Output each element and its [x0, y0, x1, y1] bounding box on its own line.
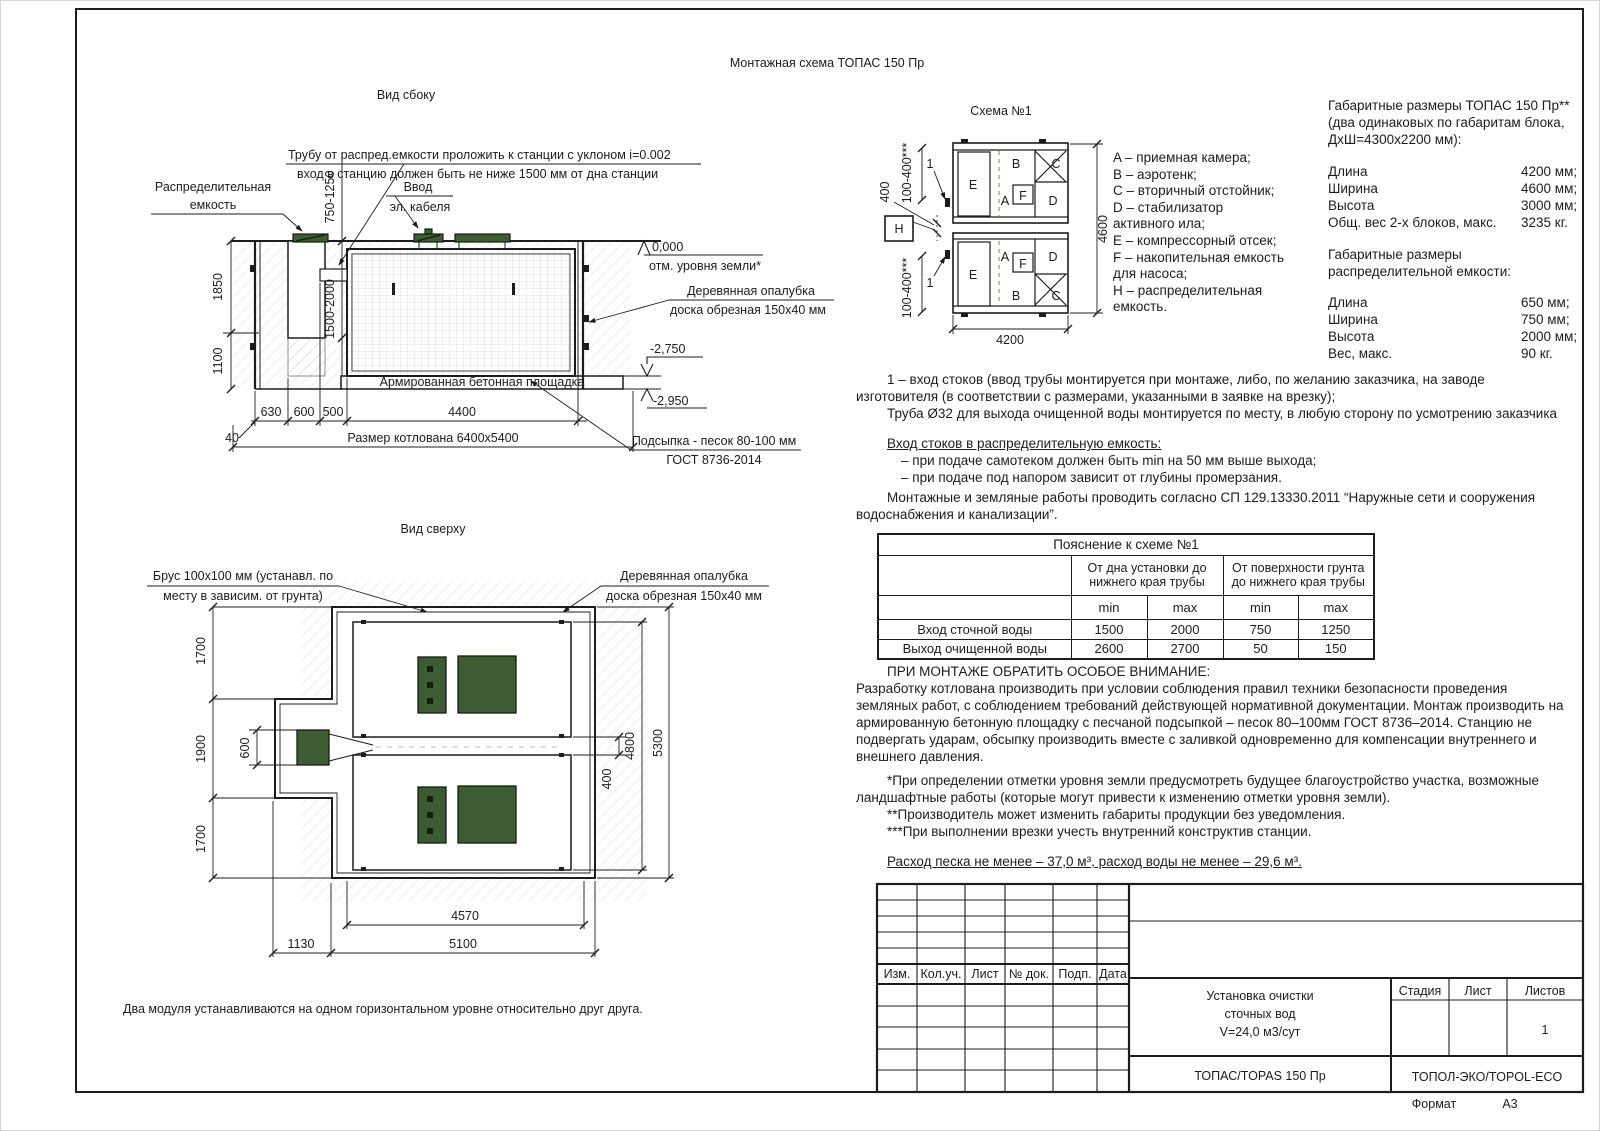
- ground-level-mark: 0,000 отм. уровня земли*: [638, 240, 763, 273]
- svg-text:5100: 5100: [449, 937, 477, 951]
- legend-line: H – распределительная: [1113, 283, 1284, 300]
- svg-text:D: D: [1048, 194, 1057, 208]
- col-kol: Кол.уч.: [921, 967, 962, 981]
- svg-text:1850: 1850: [211, 273, 225, 301]
- svg-text:1900: 1900: [194, 735, 208, 763]
- attention-line3: армированную бетонную площадку с песчано…: [856, 715, 1532, 731]
- outlet-note: Труба Ø32 для выхода очищенной воды монт…: [887, 406, 1557, 422]
- svg-text:Ввод: Ввод: [404, 180, 434, 194]
- svg-text:-2,750: -2,750: [650, 342, 685, 356]
- svg-text:доска обрезная 150х40 мм: доска обрезная 150х40 мм: [606, 589, 762, 603]
- svg-text:емкость: емкость: [190, 198, 237, 212]
- inlet-note-line1: 1 – вход стоков (ввод трубы монтируется …: [887, 372, 1485, 388]
- svg-text:100-400***: 100-400***: [900, 143, 914, 204]
- svg-text:отм. уровня земли*: отм. уровня земли*: [649, 259, 761, 273]
- svg-text:C: C: [1051, 289, 1060, 303]
- footnote-1-line2: ландшафтные работы (которые могут привес…: [856, 790, 1390, 806]
- product-name: ТОПАС/TOPAS 150 Пр: [1194, 1069, 1325, 1083]
- legend-line: E – компрессорный отсек;: [1113, 233, 1284, 250]
- svg-text:1500-2000: 1500-2000: [323, 279, 337, 339]
- station-body: [347, 242, 575, 376]
- svg-text:4570: 4570: [451, 909, 479, 923]
- col-podp: Подп.: [1058, 967, 1091, 981]
- compartment-legend: A – приемная камера; B – аэротенк; C – в…: [1113, 150, 1284, 316]
- table-row: Вход сточной воды 1500 2000 750 1250: [878, 619, 1374, 639]
- dist-inlet-bullet2: – при подаче под напором зависит от глуб…: [901, 470, 1282, 486]
- svg-text:F: F: [1019, 257, 1027, 271]
- attention-line1: Разработку котлована производить при усл…: [856, 681, 1507, 697]
- top-distribution-tank: [297, 730, 329, 765]
- dim-row: Длина4200 мм;: [1328, 164, 1578, 179]
- col-data: Дата: [1099, 967, 1127, 981]
- svg-text:E: E: [969, 268, 977, 282]
- attention-line4: подвергать ударам, обсыпку производить в…: [856, 732, 1537, 748]
- dist-inlet-bullet1: – при подаче самотеком должен быть min н…: [901, 453, 1316, 469]
- attention-title: ПРИ МОНТАЖЕ ОБРАТИТЬ ОСОБОЕ ВНИМАНИЕ:: [887, 664, 1210, 680]
- svg-text:B: B: [1012, 289, 1020, 303]
- sheets-value: 1: [1542, 1023, 1549, 1037]
- side-view-title: Вид сбоку: [377, 88, 436, 102]
- dim-row: Высота2000 мм;: [1328, 329, 1578, 344]
- stage-label: Стадия: [1399, 984, 1442, 998]
- col-doc: № док.: [1009, 967, 1049, 981]
- svg-text:630: 630: [261, 405, 282, 419]
- legend-line: для насоса;: [1113, 266, 1284, 283]
- level-2950-mark: -2,950: [641, 389, 707, 408]
- svg-text:D: D: [1048, 250, 1057, 264]
- svg-text:600: 600: [238, 738, 252, 759]
- footnote-1-line1: *При определении отметки уровня земли пр…: [887, 773, 1539, 789]
- legend-line: D – стабилизатор: [1113, 200, 1284, 217]
- top-view-note: Два модуля устанавливаются на одном гори…: [123, 1002, 643, 1016]
- schema-1: Схема №1 E B C A F D: [878, 104, 1110, 347]
- title-block: Изм. Кол.уч. Лист № док. Подп. Дата Уста…: [877, 884, 1583, 1111]
- module-2: [353, 753, 571, 871]
- svg-text:H: H: [894, 222, 903, 236]
- schema-title: Схема №1: [970, 104, 1032, 118]
- svg-text:Подсыпка - песок 80-100 мм: Подсыпка - песок 80-100 мм: [632, 434, 796, 448]
- svg-text:0,000: 0,000: [652, 240, 683, 254]
- dim-row: Длина650 мм;: [1328, 295, 1578, 310]
- doc-title-2: сточных вод: [1224, 1007, 1296, 1021]
- table-group2-header: От поверхности грунта до нижнего края тр…: [1223, 555, 1374, 595]
- schema-block-bottom: E A F D B C: [945, 233, 1068, 317]
- svg-text:4600: 4600: [1096, 215, 1110, 243]
- schema-block-top: E B C A F D: [945, 139, 1068, 223]
- svg-text:Деревянная опалубка: Деревянная опалубка: [687, 284, 815, 298]
- company-name: ТОПОЛ-ЭКО/TOPOL-ECO: [1412, 1070, 1563, 1084]
- svg-text:1700: 1700: [194, 637, 208, 665]
- footnote-3: ***При выполнении врезки учесть внутренн…: [887, 824, 1311, 840]
- svg-text:A: A: [1001, 194, 1010, 208]
- svg-text:1130: 1130: [288, 937, 315, 951]
- explanation-table: Пояснение к схеме №1 От дна установки до…: [877, 533, 1375, 660]
- distribution-tank-label: Распределительная емкость: [151, 180, 302, 231]
- consumption-note: Расход песка не менее – 37,0 м³, расход …: [887, 854, 1302, 870]
- legend-line: емкость.: [1113, 299, 1284, 316]
- svg-text:C: C: [1051, 157, 1060, 171]
- svg-text:месту в зависим. от грунта): месту в зависим. от грунта): [163, 589, 323, 603]
- svg-text:400: 400: [600, 769, 614, 790]
- max-header-2: max: [1298, 595, 1374, 619]
- attention-line5: внешнего давления.: [856, 749, 984, 765]
- side-view: Вид сбоку Армированная бетонная площадка: [151, 88, 834, 467]
- dim-row: Высота3000 мм;: [1328, 198, 1578, 213]
- max-header-1: max: [1147, 595, 1223, 619]
- legend-line: C – вторичный отстойник;: [1113, 183, 1284, 200]
- svg-text:A: A: [1001, 250, 1010, 264]
- svg-text:4800: 4800: [623, 732, 637, 760]
- cable-entry-label: Ввод эл. кабеля: [386, 180, 453, 228]
- legend-line: B – аэротенк;: [1113, 167, 1284, 184]
- footnote-2: **Производитель может изменить габариты …: [887, 807, 1345, 823]
- dim-row: Общ. вес 2-х блоков, макс.3235 кг.: [1328, 215, 1578, 230]
- svg-text:Размер котлована 6400х5400: Размер котлована 6400х5400: [347, 431, 518, 445]
- legend-line: A – приемная камера;: [1113, 150, 1284, 167]
- svg-text:B: B: [1012, 157, 1020, 171]
- page-title: Монтажная схема ТОПАС 150 Пр: [730, 56, 924, 70]
- svg-text:5300: 5300: [651, 729, 665, 757]
- drawing-sheet: Монтажная схема ТОПАС 150 Пр Вид сбоку А…: [0, 0, 1600, 1131]
- attention-line2: земляных работ, с соблюдением требований…: [856, 698, 1564, 714]
- legend-line: F – накопительная емкость: [1113, 250, 1284, 267]
- module-1: [353, 620, 571, 738]
- svg-text:1: 1: [927, 276, 934, 290]
- table-group1-header: От дна установки до нижнего края трубы: [1071, 555, 1223, 595]
- dist-dims-subtitle1: Габаритные размеры: [1328, 247, 1462, 263]
- svg-text:1100: 1100: [211, 348, 225, 375]
- schema-right-bottom-dims: 4600 4200: [949, 140, 1110, 347]
- svg-text:F: F: [1019, 189, 1027, 203]
- svg-text:400: 400: [878, 182, 892, 203]
- concrete-pad-label: Армированная бетонная площадка: [380, 375, 585, 389]
- dist-inlet-header: Вход стоков в распределительную емкость:: [887, 436, 1161, 452]
- format-label: Формат: [1412, 1097, 1457, 1111]
- svg-text:4200: 4200: [996, 333, 1024, 347]
- doc-title-1: Установка очистки: [1206, 989, 1313, 1003]
- dim-row: Вес, макс.90 кг.: [1328, 346, 1578, 361]
- format-value: А3: [1502, 1097, 1517, 1111]
- sp-note-line1: Монтажные и земляные работы проводить со…: [887, 490, 1535, 506]
- sheets-label: Листов: [1525, 984, 1566, 998]
- overall-dims-title1: Габаритные размеры ТОПАС 150 Пр**: [1328, 98, 1570, 114]
- schema-h-box: H: [885, 202, 941, 241]
- dim-row: Ширина4600 мм;: [1328, 181, 1578, 196]
- doc-title-3: V=24,0 м3/сут: [1220, 1025, 1301, 1039]
- svg-text:Деревянная опалубка: Деревянная опалубка: [620, 569, 748, 583]
- table-row: Выход очищенной воды 2600 2700 50 150: [878, 639, 1374, 659]
- svg-text:ГОСТ 8736-2014: ГОСТ 8736-2014: [666, 453, 761, 467]
- overall-dims-title2: (два одинаковых по габаритам блока,: [1328, 115, 1565, 131]
- dist-dims-subtitle2: распределительной емкости:: [1328, 264, 1511, 280]
- svg-text:Брус 100х100 мм (устанавл. по: Брус 100х100 мм (устанавл. по: [153, 569, 333, 583]
- svg-text:Распределительная: Распределительная: [155, 180, 271, 194]
- top-view-title: Вид сверху: [400, 522, 466, 536]
- col-list: Лист: [971, 967, 998, 981]
- svg-text:100-400***: 100-400***: [900, 258, 914, 319]
- table-corner-cell: [878, 555, 1071, 595]
- dim-row: Ширина750 мм;: [1328, 312, 1578, 327]
- sheet-label: Лист: [1464, 984, 1491, 998]
- overall-dims-title3: ДхШ=4300х2200 мм):: [1328, 132, 1462, 148]
- min-header-1: min: [1071, 595, 1147, 619]
- svg-text:доска обрезная 150х40 мм: доска обрезная 150х40 мм: [670, 303, 826, 317]
- level-2750-mark: -2,750: [641, 342, 703, 376]
- svg-text:-2,950: -2,950: [653, 394, 688, 408]
- sp-note-line2: водоснабжения и канализации”.: [856, 507, 1058, 523]
- min-header-2: min: [1223, 595, 1298, 619]
- inlet-note-line2: изготовителя (в соответствии с размерами…: [856, 389, 1335, 405]
- svg-text:500: 500: [323, 405, 344, 419]
- svg-text:1700: 1700: [194, 825, 208, 853]
- svg-text:600: 600: [294, 405, 315, 419]
- table-title: Пояснение к схеме №1: [878, 534, 1374, 555]
- svg-text:Трубу от распред.емкости проло: Трубу от распред.емкости проложить к ста…: [288, 148, 671, 162]
- legend-line: активного ила;: [1113, 216, 1284, 233]
- svg-text:40: 40: [225, 431, 239, 445]
- top-view: Вид сверху: [123, 522, 769, 1016]
- col-izm: Изм.: [884, 967, 911, 981]
- svg-text:4400: 4400: [448, 405, 476, 419]
- svg-text:1: 1: [927, 157, 934, 171]
- svg-text:вход в станцию должен быть не: вход в станцию должен быть не ниже 1500 …: [297, 167, 658, 181]
- svg-text:эл. кабеля: эл. кабеля: [390, 200, 451, 214]
- svg-text:E: E: [969, 178, 977, 192]
